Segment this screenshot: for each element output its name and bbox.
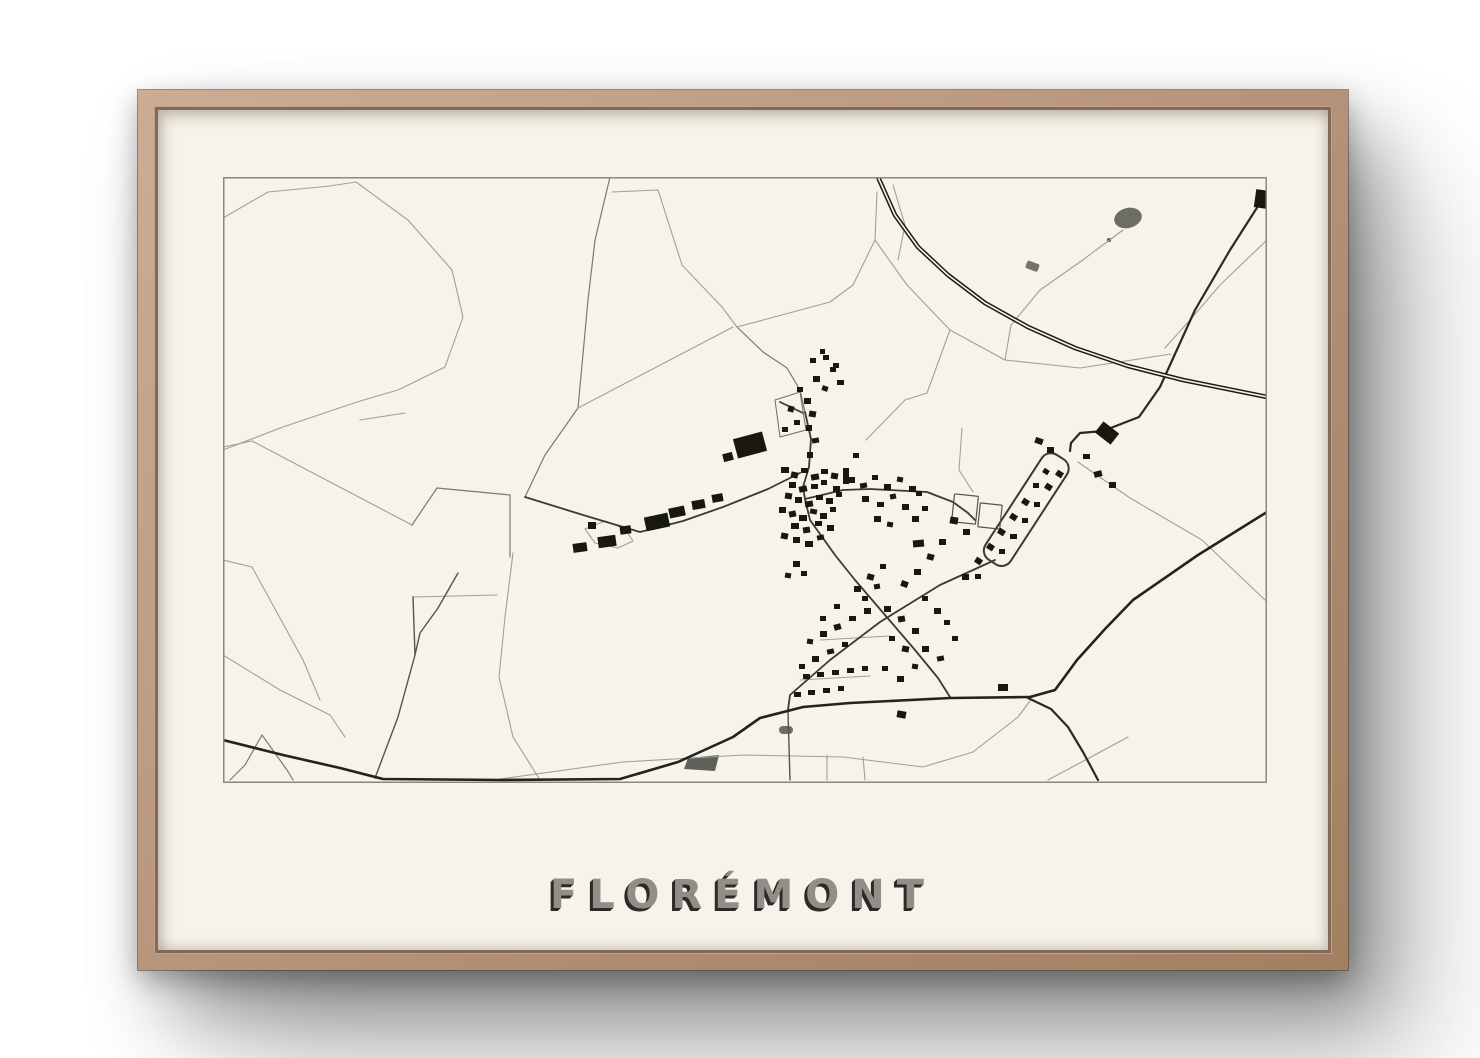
poster-paper: FLORÉMONT [158, 110, 1328, 950]
wall-background: FLORÉMONT [0, 0, 1480, 1058]
map-canvas [223, 177, 1267, 783]
poster-frame: FLORÉMONT [138, 90, 1348, 970]
poster-title: FLORÉMONT [158, 873, 1328, 917]
town-map [223, 177, 1267, 783]
